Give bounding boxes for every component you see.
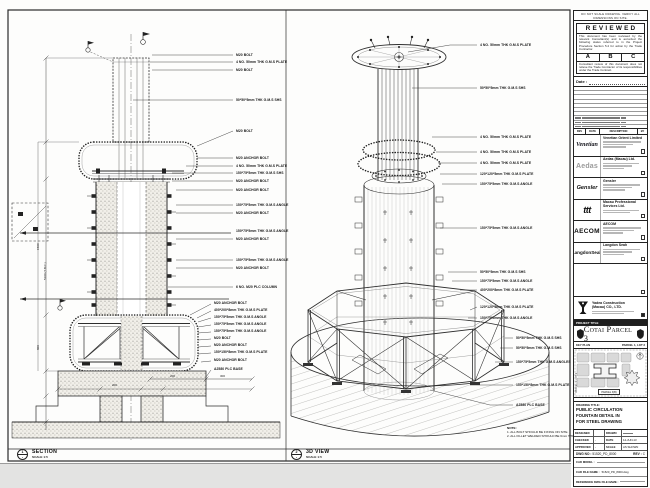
revision-table bbox=[574, 87, 647, 129]
callout-label: M20 ANCHOR BOLT bbox=[214, 358, 247, 362]
reviewed-title: REVIEWED bbox=[577, 24, 644, 34]
callout-label: A2580 PLC BASE bbox=[516, 403, 545, 407]
dim-label: 200 bbox=[170, 374, 175, 378]
project-title: Cotai Parcel 3 bbox=[584, 325, 637, 343]
callout-label: A2580 PLC BASE bbox=[214, 367, 243, 371]
cad-info-rows: CAD MODEL : CAD FILE NAME : 51520_PD_800… bbox=[574, 458, 647, 486]
section-view-drawing bbox=[12, 32, 280, 440]
cad-file-value: 51520_PD_8000.dwg bbox=[602, 470, 629, 474]
section-ref-bubble: 1 - bbox=[17, 449, 28, 460]
rev-col-header: REV bbox=[574, 129, 586, 134]
callout-label: M20 BOLT bbox=[236, 129, 253, 133]
callout-label: 4 NO. 50mm THK G.M.S PLATE bbox=[480, 150, 531, 154]
drawing-title-line: FOR STEEL DRAWING bbox=[576, 419, 645, 425]
iso-leader-lines bbox=[408, 45, 513, 405]
company-row-gensler: Gensler Gensler bbox=[574, 178, 647, 200]
company-name: Macau Professional Services Ltd. bbox=[603, 201, 645, 208]
callout-label: 150*75*5mm THK G.M.S ANGLES bbox=[516, 360, 571, 364]
reference-dwg-label: REFERENCE DWG FILE NAME : bbox=[576, 480, 618, 484]
drawing-title-line: FOUNTAIN DETAIL IN bbox=[576, 413, 645, 419]
callout-label: 150*150*8mm THK G.M.S PLATE bbox=[214, 350, 267, 354]
rev-value: C bbox=[643, 452, 645, 456]
cad-model-label: CAD MODEL : bbox=[576, 460, 595, 464]
date-value: 14-JUN-13 bbox=[622, 437, 647, 444]
dim-label: 5100 (T.B.C.) bbox=[43, 262, 47, 280]
reviewed-stamp: REVIEWED This document has been reviewed… bbox=[574, 21, 647, 77]
callout-label: M20 ANCHOR BOLT bbox=[236, 237, 269, 241]
callout-label: M20 BOLT bbox=[214, 336, 231, 340]
status-option-a[interactable]: A bbox=[577, 54, 600, 61]
key-plan-label: KEY PLAN bbox=[576, 343, 590, 347]
callout-label: 50*50*5mm THK G.M.S SHS bbox=[516, 336, 562, 340]
cad-file-row: CAD FILE NAME : 51520_PD_8000.dwg bbox=[574, 468, 647, 478]
callout-label: 150*75*5mm THK G.M.S ANGLE bbox=[214, 322, 266, 326]
callout-label: 150*75*5mm THK G.M.S ANGLE bbox=[480, 226, 532, 230]
octagon-frame bbox=[303, 283, 509, 393]
cad-file-label: CAD FILE NAME : bbox=[576, 470, 600, 474]
contractor-logo-icon bbox=[576, 300, 590, 316]
section-view-scale: SCALE 1:5 bbox=[32, 455, 48, 459]
company-name: Gensler bbox=[603, 180, 645, 184]
dim-label: 200 bbox=[112, 383, 117, 387]
company-row-aedas: Aedas Aedas (Macau) Ltd. bbox=[574, 157, 647, 179]
bubble-sheet: - bbox=[292, 455, 301, 459]
company-checkbox[interactable] bbox=[641, 192, 646, 197]
callout-label: 120*120*5mm THK G.M.S PLATE bbox=[480, 305, 533, 309]
callout-label: M20 ANCHOR BOLT bbox=[236, 188, 269, 192]
designed-value bbox=[594, 430, 605, 437]
callout-label: 150*75*5mm THK G.M.S ANGLE bbox=[480, 279, 532, 283]
company-name: Aedas (Macau) Ltd. bbox=[603, 158, 645, 162]
callout-label: 150*75*5mm THK G.M.S ANGLE bbox=[214, 315, 266, 319]
contractor-name-line2: (Macau) CO., LTD. bbox=[592, 306, 645, 310]
callout-label: 150*75*5mm THK G.M.S ANGLE bbox=[480, 316, 532, 320]
page-background-strip bbox=[0, 463, 571, 488]
callout-label: 400*200*8mm THK G.M.S PLATE bbox=[214, 308, 267, 312]
company-checkbox[interactable] bbox=[641, 149, 646, 154]
rev-label: REV : bbox=[633, 452, 642, 456]
callout-label: 4 NO. 50mm THK G.M.S PLATE bbox=[236, 164, 287, 168]
checked-value: - bbox=[594, 437, 605, 444]
callout-label: M20 ANCHOR BOLT bbox=[214, 301, 247, 305]
key-plan-map: PARCEL 1, LOT 2 PARCEL 3(B) bbox=[574, 349, 647, 398]
callout-label: M20 BOLT bbox=[236, 68, 253, 72]
callout-label: 150*75*5mm THK G.M.S ANGLE bbox=[236, 203, 288, 207]
callout-label: 150*75*5mm THK G.M.S ANGLE bbox=[236, 258, 288, 262]
callout-label: 50*50*5mm THK G.M.S SHS bbox=[236, 98, 282, 102]
drawing-sheet: M20 BOLT 4 NO. 50mm THK G.M.S PLATE M20 … bbox=[0, 0, 650, 488]
key-plan-sublabel: PARCEL 1, LOT 3 bbox=[622, 343, 645, 347]
reviewed-date-row: Date : bbox=[574, 77, 647, 87]
date-label: Date : bbox=[576, 79, 587, 84]
drawing-canvas bbox=[0, 0, 650, 488]
company-row-aecom: AECOM AECOM bbox=[574, 221, 647, 243]
callout-label: 6 NO. M20 PLC COLUMN bbox=[236, 285, 277, 289]
date-col-header: DATE bbox=[586, 129, 600, 134]
callout-label: 50*50*5mm THK G.M.S SHS bbox=[480, 270, 526, 274]
company-row-macau-professional: ttt Macau Professional Services Ltd. bbox=[574, 200, 647, 222]
callout-label: M20 ANCHOR BOLT bbox=[236, 156, 269, 160]
dwg-no-value: 51520_PD_8000 bbox=[592, 452, 616, 456]
drawing-title-label: DRAWING TITLE: bbox=[576, 403, 645, 407]
contractor-row: Yadea Construction (Macau) CO., LTD. bbox=[574, 297, 647, 320]
aedas-logo: Aedas bbox=[576, 163, 598, 170]
contractor-checkbox[interactable] bbox=[641, 313, 646, 318]
callout-label: M20 BOLT bbox=[236, 53, 253, 57]
key-plan-side-label: PARCEL 1, LOT 2 bbox=[575, 373, 578, 393]
drawn-label: DRAWN bbox=[605, 430, 622, 437]
status-option-b[interactable]: B bbox=[600, 54, 623, 61]
drawing-title-box: DRAWING TITLE: PUBLIC CIRCULATION FOUNTA… bbox=[574, 402, 647, 430]
consultant-blank-row bbox=[574, 264, 647, 297]
key-plan-header: KEY PLAN PARCEL 1, LOT 3 bbox=[574, 342, 647, 349]
callout-label: 150*150*8mm THK G.M.S PLATE bbox=[516, 383, 569, 387]
dim-label: 300 bbox=[220, 374, 225, 378]
callout-label: 150*75*5mm THK G.M.S ANGLE bbox=[480, 182, 532, 186]
callout-label: 4 NO. 50mm THK G.M.S PLATE bbox=[480, 161, 531, 165]
scale-label: SCALE bbox=[605, 444, 622, 451]
callout-label: 400*200*8mm THK G.M.S PLATE bbox=[480, 288, 533, 292]
aecom-logo: AECOM bbox=[574, 228, 600, 235]
callout-label: 150*75*5mm THK G.M.S SHS bbox=[236, 171, 284, 175]
company-row-langdon-seah: LangdonSeah Langdon Seah bbox=[574, 243, 647, 265]
reference-dwg-row: REFERENCE DWG FILE NAME : bbox=[574, 477, 647, 486]
reviewed-body-1: This document has been reviewed by the r… bbox=[577, 34, 644, 53]
approved-label: APPROVED bbox=[574, 444, 594, 451]
key-plan-tag: PARCEL 3(B) bbox=[598, 389, 620, 395]
company-checkbox[interactable] bbox=[641, 290, 646, 295]
callout-label: 4 NO. 50mm THK G.M.S PLATE bbox=[236, 60, 287, 64]
callout-label: 4 NO. 50mm THK G.M.S PLATE bbox=[480, 135, 531, 139]
langdon-seah-logo: LangdonSeah bbox=[574, 250, 601, 255]
callout-label: 4 NO. 50mm THK G.M.S PLATE bbox=[480, 43, 531, 47]
note-line: 2. ALL FILLET WELDED SHOULD BE 6mm THK. bbox=[507, 435, 575, 439]
description-col-header: DESCRIPTION bbox=[600, 129, 638, 134]
company-checkbox[interactable] bbox=[641, 214, 646, 219]
designed-label: DESIGNED bbox=[574, 430, 594, 437]
callout-label: M20 ANCHOR BOLT bbox=[236, 211, 269, 215]
crest-icon bbox=[577, 329, 584, 339]
callout-label: M20 ANCHOR BOLT bbox=[236, 179, 269, 183]
checked-label: CHECKED bbox=[574, 437, 594, 444]
gensler-logo: Gensler bbox=[577, 185, 598, 191]
general-notes: NOTE: 1. ALL BOLT SHOULD BE FIXING ON SI… bbox=[507, 427, 575, 439]
drawing-title-line: PUBLIC CIRCULATION bbox=[576, 407, 645, 413]
info-table: DESIGNED DRAWN CHECKED - DATE 14-JUN-13 … bbox=[574, 430, 647, 451]
company-name: AECOM bbox=[603, 223, 645, 227]
revision-row bbox=[574, 125, 647, 128]
reviewed-status-options: A B C bbox=[577, 53, 644, 62]
title-block: DO NOT SCALE DRAWING. VERIFY ALL DIMENSI… bbox=[573, 10, 648, 487]
dwg-number-row: DWG NO : 51520_PD_8000 REV : C bbox=[574, 451, 647, 458]
by-col-header: BY bbox=[638, 129, 647, 134]
scale-value: AS SHOWN bbox=[622, 444, 647, 451]
project-title-row: Cotai Parcel 3 bbox=[574, 326, 647, 342]
callout-label: 50*50*5mm THK G.M.S SHS bbox=[480, 86, 526, 90]
company-row-venetian: Venetian Venetian Orient Limited bbox=[574, 135, 647, 157]
iso-view-scale: SCALE 1:5 bbox=[306, 455, 322, 459]
dwg-no-label: DWG NO : bbox=[576, 452, 591, 456]
venetian-logo: Venetian bbox=[576, 142, 598, 148]
edge-note: DO NOT SCALE DRAWING. VERIFY ALL DIMENSI… bbox=[574, 11, 647, 21]
drawn-value bbox=[622, 430, 647, 437]
callout-label: M20 ANCHOR BOLT bbox=[214, 343, 247, 347]
callout-label: 120*120*5mm THK G.M.S PLATE bbox=[480, 172, 533, 176]
reviewed-body-2: Consultant review of this document does … bbox=[577, 62, 644, 74]
company-checkbox[interactable] bbox=[641, 171, 646, 176]
company-checkbox[interactable] bbox=[641, 257, 646, 262]
iso-view-drawing bbox=[291, 36, 549, 436]
bubble-sheet: - bbox=[18, 455, 27, 459]
cad-model-row: CAD MODEL : bbox=[574, 458, 647, 468]
date-entry-line[interactable] bbox=[589, 79, 645, 85]
callout-label: M20 ANCHOR BOLT bbox=[236, 266, 269, 270]
crest-icon bbox=[637, 329, 644, 339]
company-checkbox[interactable] bbox=[641, 235, 646, 240]
approved-value: - bbox=[594, 444, 605, 451]
status-option-c[interactable]: C bbox=[622, 54, 644, 61]
top-plate bbox=[352, 36, 446, 70]
dim-label: 800 bbox=[36, 345, 40, 350]
callout-label: 150*75*5mm THK G.M.S ANGLE bbox=[214, 329, 266, 333]
iso-ref-bubble: 2 - bbox=[291, 449, 302, 460]
company-name: Langdon Seah bbox=[603, 244, 645, 248]
dim-label: 1500 bbox=[36, 243, 40, 250]
company-name: Venetian Orient Limited bbox=[603, 137, 645, 141]
callout-label: 150*75*5mm THK G.M.S ANGLE bbox=[236, 229, 288, 233]
date-label: DATE bbox=[605, 437, 622, 444]
callout-label: 50*50*5mm THK G.M.S SHS bbox=[516, 346, 562, 350]
ttt-logo: ttt bbox=[583, 205, 591, 215]
